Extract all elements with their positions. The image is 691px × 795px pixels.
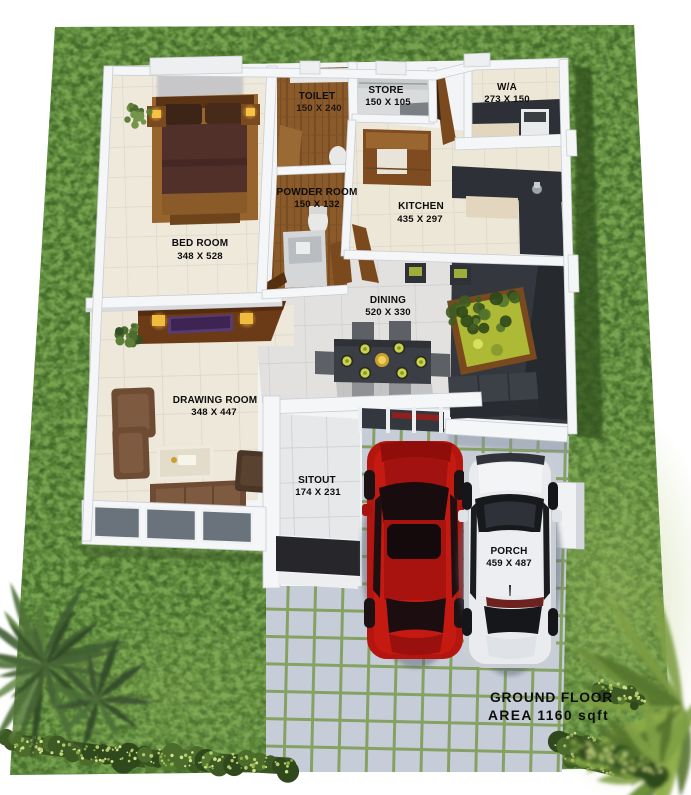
- svg-text:520 X 330: 520 X 330: [365, 307, 411, 318]
- svg-text:150 X 132: 150 X 132: [294, 199, 340, 210]
- svg-text:273 X 150: 273 X 150: [484, 94, 530, 105]
- svg-text:174 X 231: 174 X 231: [295, 487, 341, 498]
- svg-text:AREA 1160 sqft: AREA 1160 sqft: [488, 708, 609, 723]
- svg-text:DINING: DINING: [370, 295, 406, 306]
- svg-text:KITCHEN: KITCHEN: [398, 201, 444, 212]
- svg-text:STORE: STORE: [368, 85, 403, 96]
- svg-text:TOILET: TOILET: [299, 91, 336, 102]
- svg-text:POWDER ROOM: POWDER ROOM: [276, 187, 357, 198]
- svg-text:GROUND FLOOR: GROUND FLOOR: [490, 690, 613, 705]
- svg-text:150 X 105: 150 X 105: [365, 97, 411, 108]
- svg-text:348 X 447: 348 X 447: [191, 407, 237, 418]
- svg-text:435 X 297: 435 X 297: [397, 214, 443, 225]
- svg-text:150 X 240: 150 X 240: [296, 103, 342, 114]
- svg-text:459 X 487: 459 X 487: [486, 558, 532, 569]
- svg-text:DRAWING ROOM: DRAWING ROOM: [173, 395, 258, 406]
- svg-text:W/A: W/A: [497, 82, 517, 93]
- svg-text:BED ROOM: BED ROOM: [172, 238, 229, 249]
- svg-text:SITOUT: SITOUT: [298, 475, 336, 486]
- svg-text:PORCH: PORCH: [490, 546, 527, 557]
- svg-text:348 X 528: 348 X 528: [177, 251, 223, 262]
